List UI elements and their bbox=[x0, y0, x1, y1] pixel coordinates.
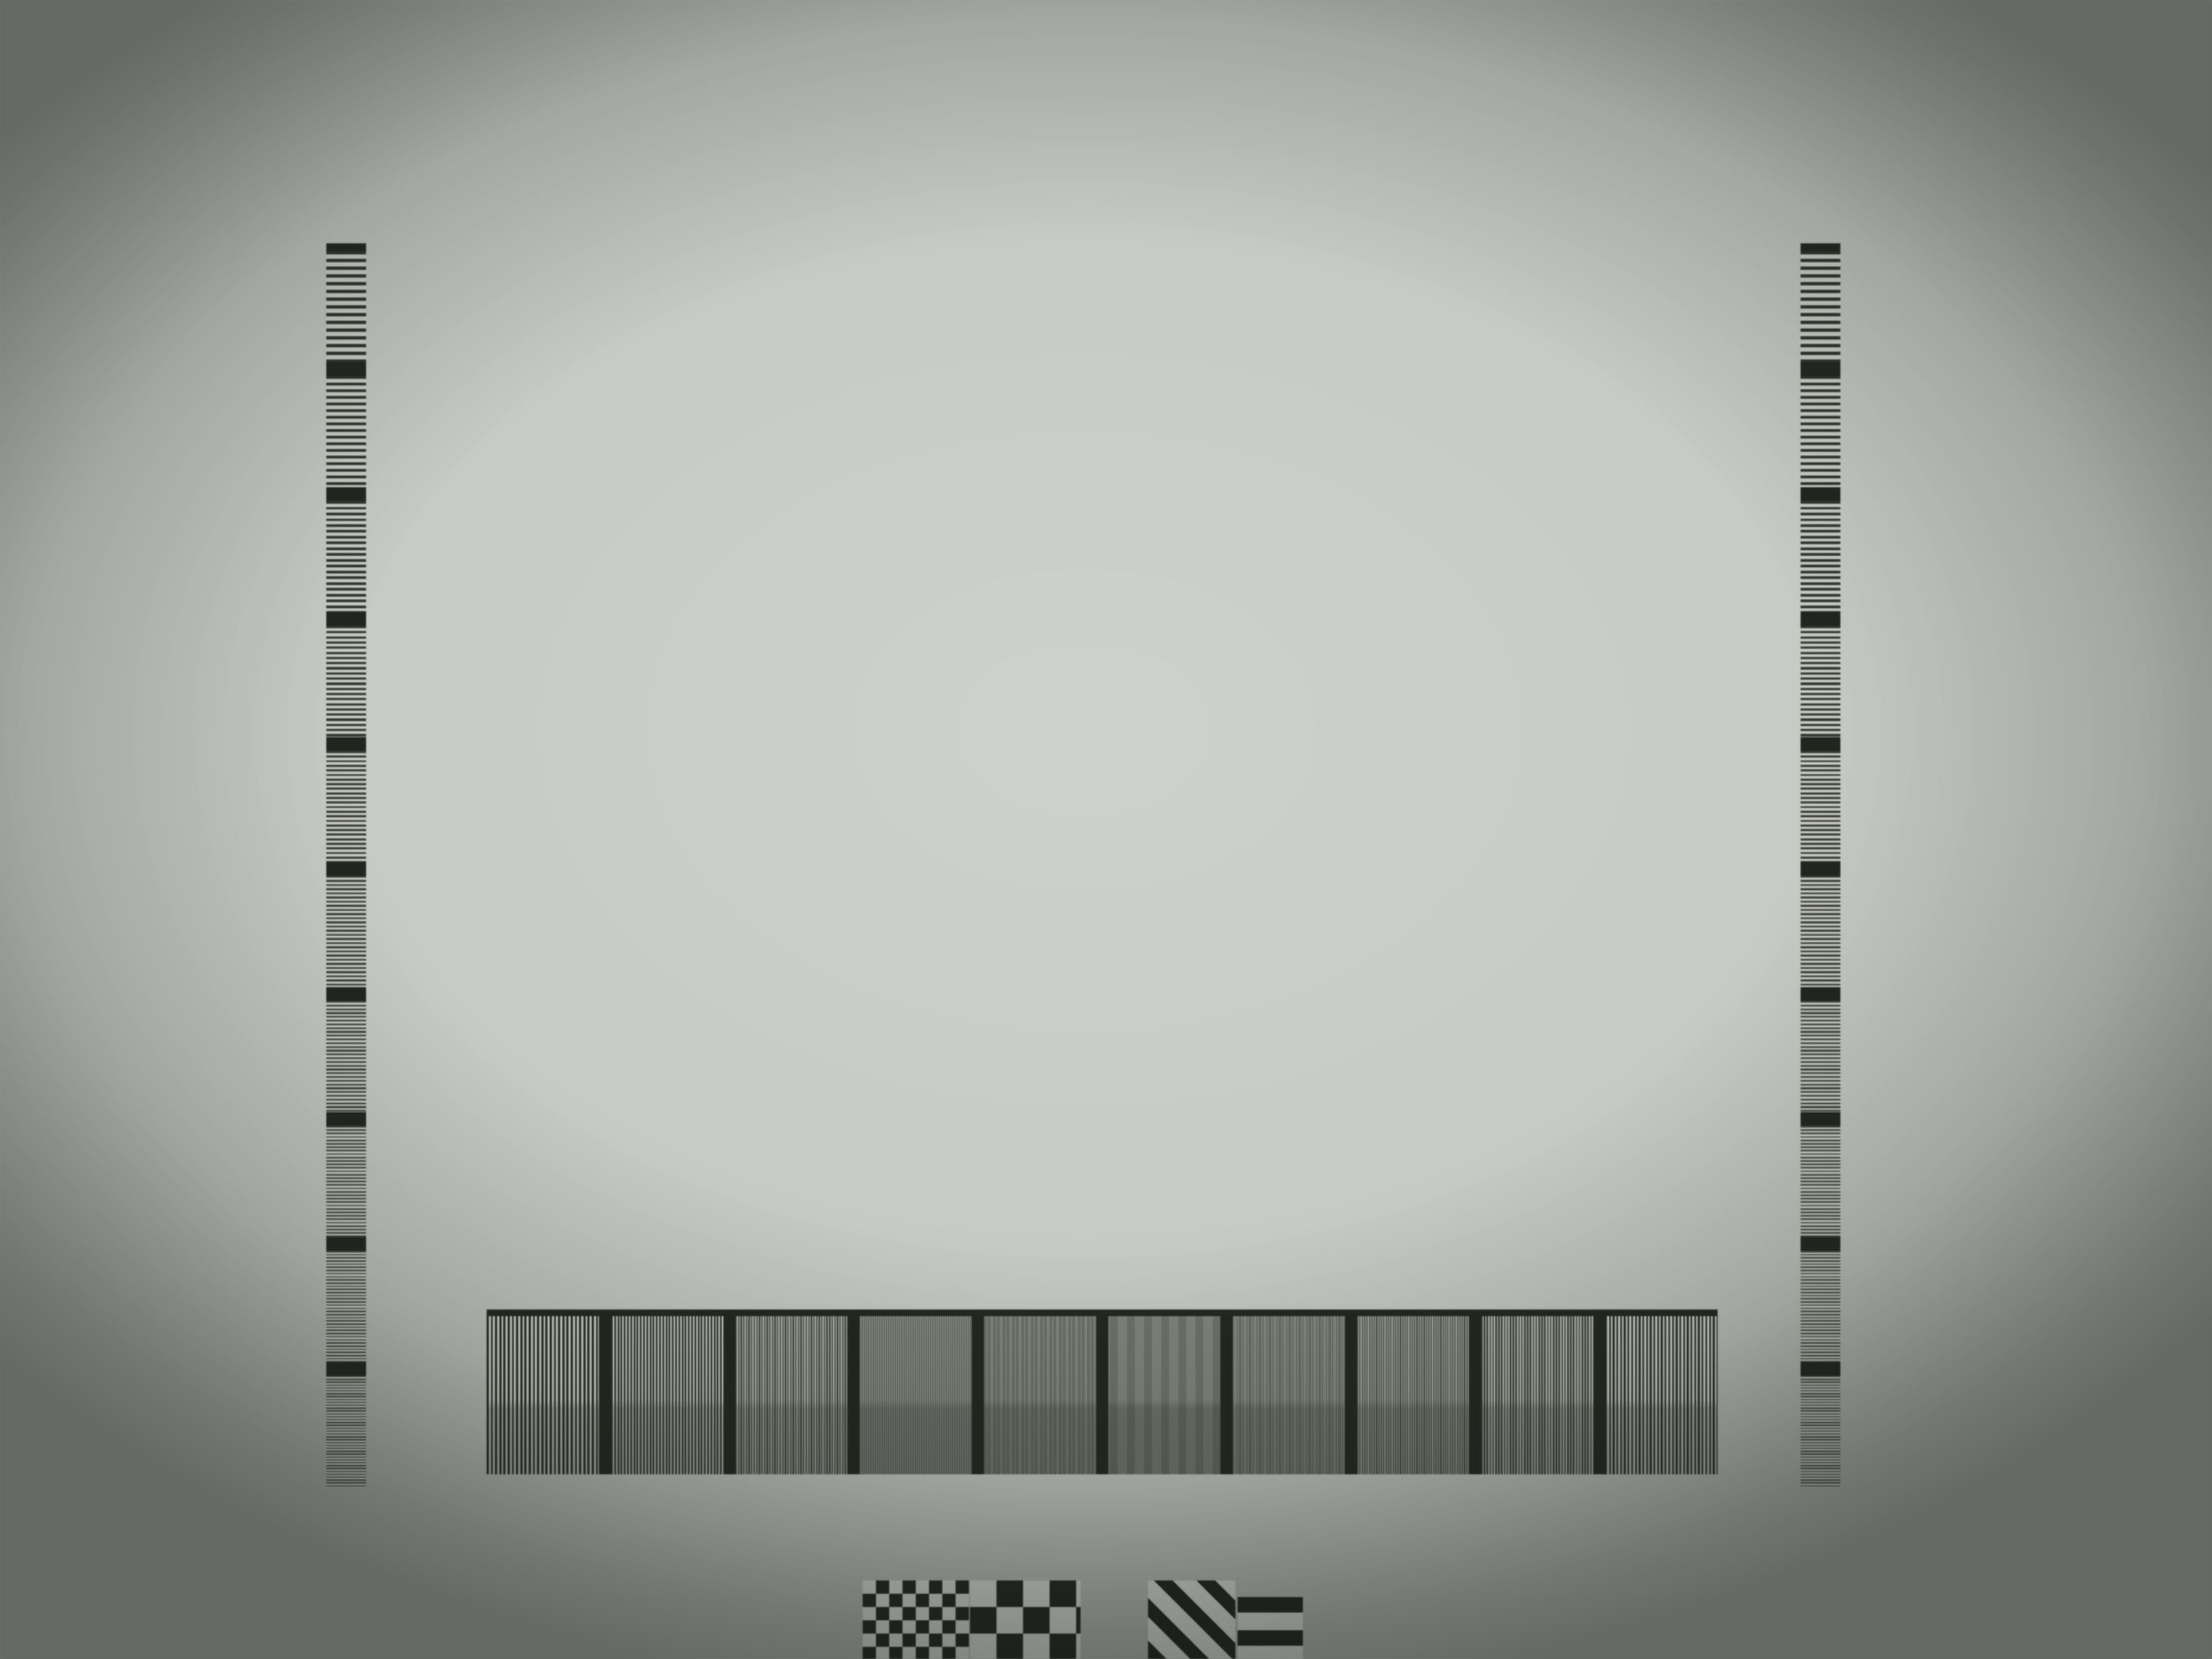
step-block bbox=[1801, 1126, 1840, 1237]
bottom-resolution-bars bbox=[487, 1310, 1718, 1474]
step-block bbox=[1801, 1251, 1840, 1362]
bar-segment bbox=[1481, 1316, 1593, 1474]
fine-checkerboard bbox=[863, 1580, 969, 1659]
step-block bbox=[1801, 751, 1840, 862]
step-block bbox=[1801, 1001, 1840, 1112]
step-block bbox=[1801, 251, 1840, 362]
step-block bbox=[1801, 626, 1840, 737]
diagonal-stripe-block bbox=[1148, 1580, 1235, 1659]
step-block bbox=[1801, 501, 1840, 612]
bar-segment bbox=[984, 1316, 1096, 1474]
left-step-wedge-column bbox=[326, 243, 366, 1487]
step-block bbox=[326, 876, 366, 987]
step-block bbox=[326, 1376, 366, 1487]
step-block bbox=[326, 626, 366, 737]
bar-segment bbox=[1233, 1316, 1345, 1474]
bar-segment bbox=[1357, 1316, 1469, 1474]
horizontal-stripe-block bbox=[1238, 1597, 1303, 1659]
step-block bbox=[326, 501, 366, 612]
step-block bbox=[326, 1251, 366, 1362]
bar-segment bbox=[487, 1316, 599, 1474]
bar-segment bbox=[1108, 1316, 1220, 1474]
bar-segment bbox=[735, 1316, 848, 1474]
bar-segment bbox=[611, 1316, 723, 1474]
step-block bbox=[1801, 876, 1840, 987]
step-block bbox=[1801, 1376, 1840, 1487]
photo-of-test-chart: 1 10 1:1 1:1 4:3 3 1:1 1:1 4:3 12 14 16 … bbox=[0, 0, 2212, 1659]
step-block bbox=[326, 1001, 366, 1112]
bar-segment bbox=[859, 1316, 972, 1474]
step-block bbox=[326, 251, 366, 362]
coarse-checkerboard bbox=[970, 1580, 1081, 1659]
step-block bbox=[1801, 376, 1840, 487]
step-block bbox=[326, 1126, 366, 1237]
bar-segment bbox=[1605, 1316, 1718, 1474]
step-block bbox=[326, 376, 366, 487]
step-block bbox=[326, 751, 366, 862]
right-step-wedge-column bbox=[1801, 243, 1840, 1487]
